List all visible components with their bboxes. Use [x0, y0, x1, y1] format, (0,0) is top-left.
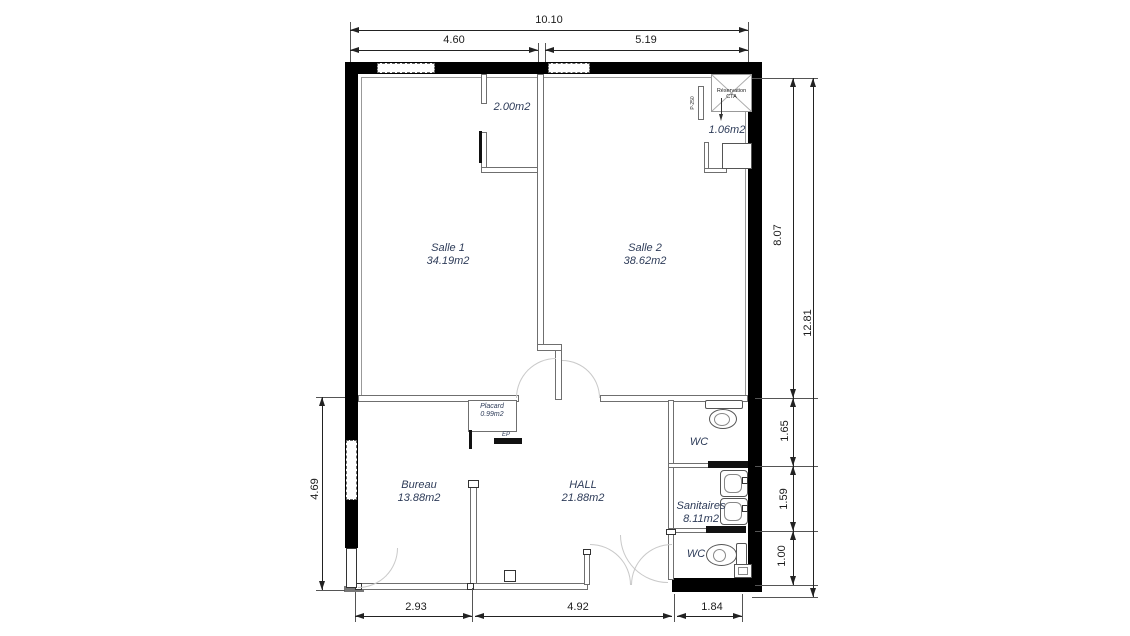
arrow	[677, 613, 686, 619]
arrow	[790, 78, 796, 87]
arrow	[790, 531, 796, 540]
dim-line-bottom-2	[475, 616, 672, 617]
door-arc-salle1	[516, 358, 556, 398]
salle2-name: Salle 2	[595, 242, 695, 255]
arrow	[463, 613, 472, 619]
sanitaires-name: Sanitaires	[651, 500, 751, 513]
arrow	[790, 398, 796, 407]
wall-bottom-right	[672, 578, 762, 592]
area-label-vestibule: 2.00m2	[487, 101, 537, 114]
arrow	[739, 27, 748, 33]
dim-bottom-right: 1.84	[690, 601, 734, 613]
dim-line-bottom-1	[355, 616, 472, 617]
double-door-center-post	[555, 350, 562, 400]
arrow	[739, 47, 748, 53]
partition-bureau-hall	[470, 483, 477, 585]
ext-top-mid-1	[538, 43, 539, 62]
room-label-salle1: Salle 1 34.19m2	[398, 242, 498, 268]
wall-face-top	[361, 77, 746, 78]
drain-box-inner	[738, 567, 748, 575]
door-arc-bureau-entry	[358, 548, 398, 588]
partition-vestibule-upper	[481, 74, 487, 104]
sink-1-basin	[724, 474, 742, 493]
dim-left-lower: 4.69	[309, 472, 321, 506]
dim-line-right-inner	[793, 78, 794, 585]
dim-right-total: 12.81	[802, 303, 814, 343]
placard-name: Placard	[469, 403, 515, 411]
wall-face-left	[361, 77, 362, 397]
floor-plan: Réservation CTA P-250 Salle 1 34.19m2 Sa…	[0, 0, 1130, 636]
window-top-1	[377, 63, 435, 73]
door-leaf-wc-top	[708, 461, 748, 468]
arrow	[350, 47, 359, 53]
sink-1-tap	[742, 477, 748, 484]
dim-right-upper: 8.07	[772, 218, 784, 252]
room-label-wc-top: WC	[674, 436, 724, 449]
toilet-top-bowl-inner	[714, 413, 730, 426]
ext-right-585	[755, 585, 818, 586]
duct-arrow-head	[719, 114, 723, 121]
arrow	[663, 613, 672, 619]
arrow	[319, 397, 325, 406]
ext-bottom-2	[472, 588, 473, 622]
placard-area: 0.99m2	[469, 411, 515, 419]
partition-vestibule-horizontal	[481, 167, 538, 173]
room-label-hall: HALL 21.88m2	[533, 479, 633, 505]
arrow	[733, 613, 742, 619]
partition-bureau-cap	[468, 480, 479, 488]
sanitaires-area: 8.11m2	[651, 513, 751, 526]
salle1-name: Salle 1	[398, 242, 498, 255]
arrow	[319, 581, 325, 590]
closet-fixture	[722, 143, 752, 169]
dim-right-sanitaires: 1.59	[778, 482, 790, 516]
arrow	[475, 613, 484, 619]
arrow	[545, 47, 554, 53]
partition-wc-sanitaires	[668, 463, 710, 468]
area-label-closet: 1.06m2	[702, 124, 752, 137]
cta-reservation-box: Réservation CTA	[711, 74, 752, 112]
door-arc-salle2	[562, 360, 600, 398]
duct-label: P-250	[690, 91, 696, 115]
cta-label-line2: CTA	[712, 94, 751, 100]
dim-right-wc-bottom: 1.00	[776, 539, 788, 573]
arrow	[790, 522, 796, 531]
dim-bottom-left: 2.93	[394, 601, 438, 613]
room-label-wc-bottom: WC	[671, 548, 721, 561]
arrow	[790, 466, 796, 475]
ext-right-top	[752, 78, 818, 79]
window-left-bureau	[346, 440, 357, 500]
window-top-2	[548, 63, 590, 73]
arrow	[790, 576, 796, 585]
arrow	[529, 47, 538, 53]
dim-line-top-total	[350, 30, 748, 31]
dim-line-left	[322, 397, 323, 590]
arrow	[810, 78, 816, 87]
arrow	[355, 613, 364, 619]
dim-right-wc: 1.65	[779, 414, 791, 448]
partition-salle-divider	[537, 74, 544, 348]
toilet-top-tank	[705, 400, 743, 409]
ext-bottom-3	[674, 594, 675, 622]
hall-area: 21.88m2	[533, 492, 633, 505]
ep-label: EP	[498, 431, 514, 439]
ext-right-bottom	[752, 597, 818, 598]
dim-bottom-center: 4.92	[556, 601, 600, 613]
hall-name: HALL	[533, 479, 633, 492]
room-label-placard: Placard 0.99m2	[469, 403, 515, 419]
salle1-area: 34.19m2	[398, 255, 498, 268]
ext-right-398	[755, 398, 818, 399]
room-label-bureau: Bureau 13.88m2	[369, 479, 469, 505]
ext-left-590	[316, 590, 345, 591]
salle2-area: 38.62m2	[595, 255, 695, 268]
hall-column	[504, 570, 516, 582]
duct-shaft	[698, 86, 704, 120]
dim-top-total: 10.10	[527, 14, 571, 26]
bureau-name: Bureau	[369, 479, 469, 492]
ext-right-466	[755, 466, 818, 467]
bureau-entry-door-leaf	[346, 548, 357, 588]
arrow	[790, 457, 796, 466]
dim-top-right: 5.19	[624, 34, 668, 46]
dim-top-left: 4.60	[432, 34, 476, 46]
dim-line-top-left	[350, 50, 538, 51]
dim-line-top-right	[545, 50, 748, 51]
room-label-salle2: Salle 2 38.62m2	[595, 242, 695, 268]
ext-right-531	[755, 531, 818, 532]
door-leaf-placard	[469, 430, 472, 449]
arrow	[350, 27, 359, 33]
door-leaf-sanitaires	[706, 526, 746, 533]
arrow	[790, 389, 796, 398]
ext-bottom-4	[742, 594, 743, 622]
arrow	[810, 588, 816, 597]
bureau-area: 13.88m2	[369, 492, 469, 505]
door-leaf-vestibule	[479, 131, 482, 163]
room-label-sanitaires: Sanitaires 8.11m2	[651, 500, 751, 526]
ext-top-right	[748, 22, 749, 62]
